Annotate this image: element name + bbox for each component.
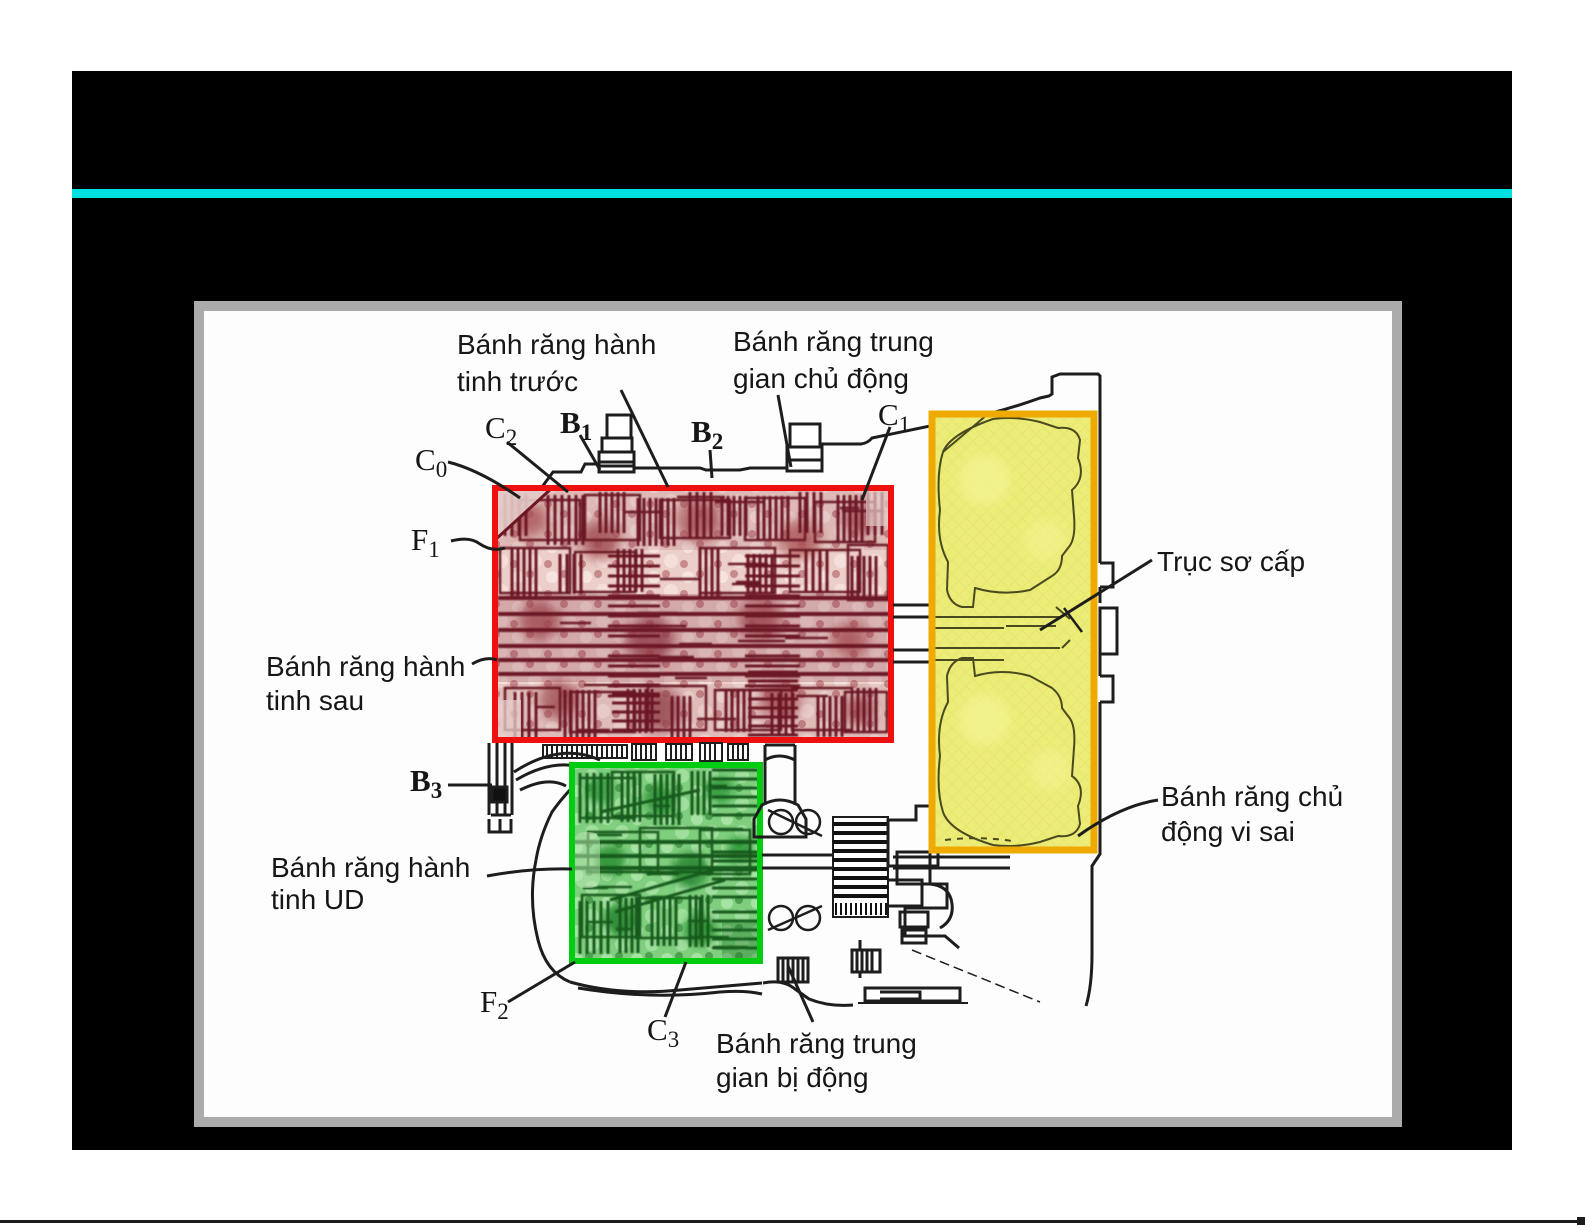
svg-text:C1: C1 [878,397,910,437]
svg-text:Bánh răng chủ: Bánh răng chủ [1161,781,1343,812]
svg-text:tinh UD: tinh UD [271,884,364,915]
svg-text:B1: B1 [560,405,592,445]
svg-text:Bánh răng hành: Bánh răng hành [266,651,465,682]
svg-text:F2: F2 [480,984,509,1024]
svg-text:B3: B3 [410,763,442,803]
svg-text:C2: C2 [485,410,517,450]
svg-text:Bánh răng trung: Bánh răng trung [716,1028,917,1059]
svg-text:Bánh răng trung: Bánh răng trung [733,326,934,357]
svg-text:gian chủ động: gian chủ động [733,363,909,394]
svg-text:tinh trước: tinh trước [457,366,578,397]
svg-text:C3: C3 [647,1012,679,1052]
svg-text:Bánh răng hành: Bánh răng hành [457,329,656,360]
svg-text:B2: B2 [691,414,723,454]
svg-text:Bánh răng hành: Bánh răng hành [271,852,470,883]
svg-text:tinh sau: tinh sau [266,685,364,716]
svg-text:gian bị động: gian bị động [716,1062,869,1093]
svg-text:Trục sơ cấp: Trục sơ cấp [1157,546,1305,577]
svg-text:động vi sai: động vi sai [1161,816,1295,847]
svg-text:F1: F1 [411,522,440,562]
svg-text:C0: C0 [415,442,447,482]
